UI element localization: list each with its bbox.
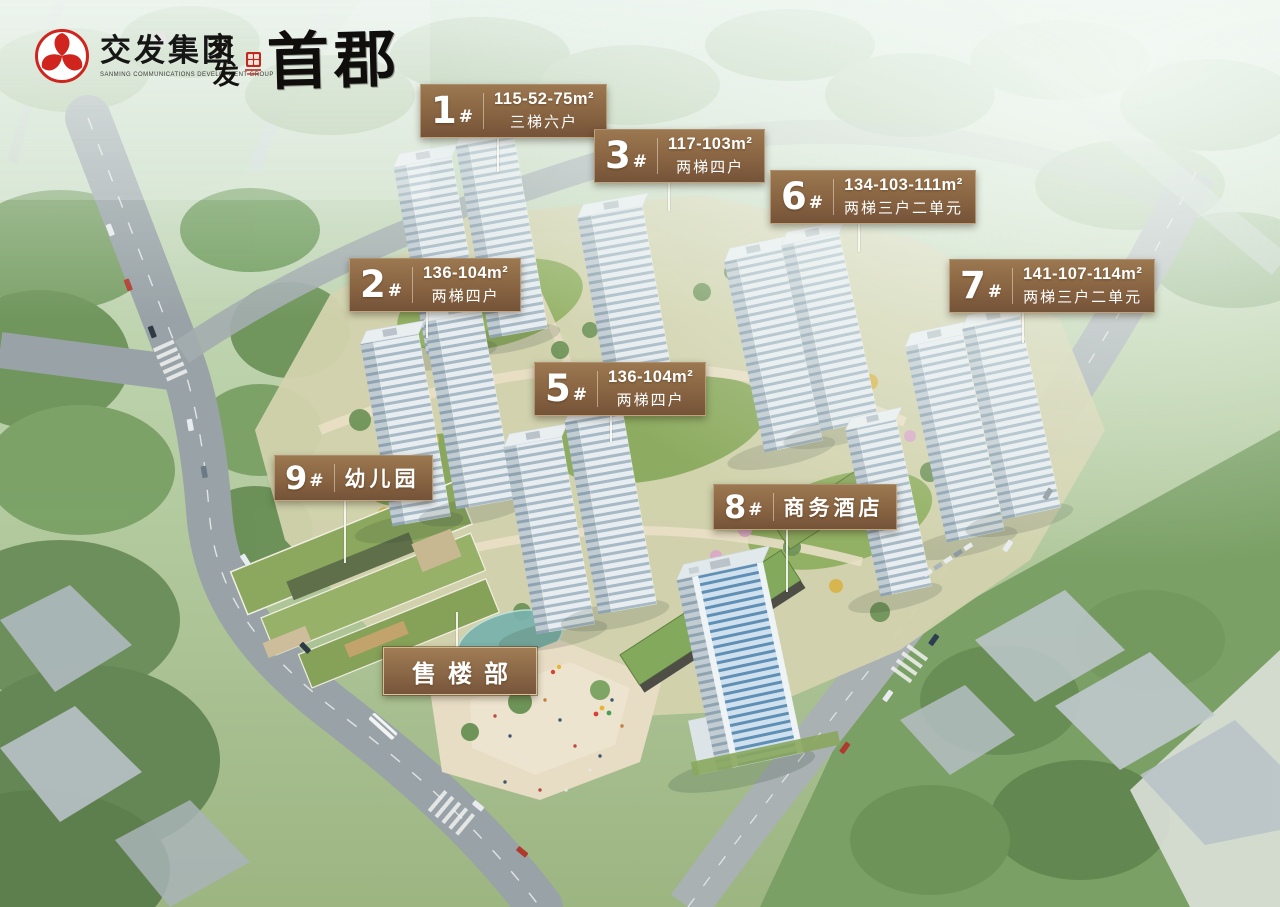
building-number-text: 8 xyxy=(724,492,746,522)
building-label-9: 9 # 幼儿园 xyxy=(274,455,433,501)
building-label-2: 2 # 136-104m² 两梯四户 xyxy=(349,258,521,312)
building-number: 9 # xyxy=(285,463,324,493)
building-layout: 两梯四户 xyxy=(676,156,744,177)
building-number: 6 # xyxy=(781,179,823,214)
building-number: 1 # xyxy=(431,93,473,128)
project-prefix-top: 交 xyxy=(207,33,239,62)
pointer-line-2 xyxy=(426,312,428,338)
building-layout: 两梯三户二单元 xyxy=(844,197,963,218)
building-number-hash: # xyxy=(748,502,762,519)
building-number-hash: # xyxy=(459,109,473,126)
pointer-line-7 xyxy=(1022,313,1024,343)
label-divider xyxy=(1012,268,1013,304)
building-number: 2 # xyxy=(360,267,402,302)
building-number-text: 5 xyxy=(545,371,571,406)
building-area: 115-52-75m² xyxy=(494,90,594,109)
building-info: 136-104m² 两梯四户 xyxy=(608,368,693,410)
building-number-text: 9 xyxy=(285,463,307,493)
pointer-line-3 xyxy=(668,183,670,211)
building-info: 117-103m² 两梯四户 xyxy=(668,135,752,177)
building-number: 7 # xyxy=(960,268,1002,303)
building-label-6: 6 # 134-103-111m² 两梯三户二单元 xyxy=(770,170,976,224)
developer-logo-icon xyxy=(34,28,90,84)
project-name: 首郡 xyxy=(266,28,402,93)
building-area: 134-103-111m² xyxy=(844,176,962,195)
building-number-hash: # xyxy=(573,387,587,404)
building-number-text: 7 xyxy=(960,268,986,303)
label-divider xyxy=(412,267,413,303)
project-prefix: 交 发 xyxy=(207,33,240,91)
building-info: 136-104m² 两梯四户 xyxy=(423,264,508,306)
building-number: 8 # xyxy=(724,492,763,522)
project-prefix-bottom: 发 xyxy=(212,62,240,91)
building-number-hash: # xyxy=(988,284,1002,301)
building-info: 115-52-75m² 三梯六户 xyxy=(494,90,594,132)
building-info: 141-107-114m² 两梯三户二单元 xyxy=(1023,265,1142,307)
label-divider xyxy=(773,493,774,521)
label-divider xyxy=(657,138,658,174)
building-number-text: 1 xyxy=(431,93,457,128)
building-label-8: 8 # 商务酒店 xyxy=(713,484,897,530)
pointer-line-9 xyxy=(344,501,346,563)
building-info: 134-103-111m² 两梯三户二单元 xyxy=(844,176,963,218)
building-label-1: 1 # 115-52-75m² 三梯六户 xyxy=(420,84,607,138)
label-divider xyxy=(833,179,834,215)
label-divider xyxy=(334,464,335,492)
building-label-3: 3 # 117-103m² 两梯四户 xyxy=(594,129,765,183)
building-number-hash: # xyxy=(633,154,647,171)
building-number-text: 3 xyxy=(605,138,631,173)
label-divider xyxy=(597,371,598,407)
building-area: 136-104m² xyxy=(608,368,693,387)
aerial-masterplan-rendering: 交发集团 SANMING COMMUNICATIONS DEVELOPMENT … xyxy=(0,0,1280,907)
building-area: 136-104m² xyxy=(423,264,508,283)
building-number: 5 # xyxy=(545,371,587,406)
pointer-line-6 xyxy=(858,224,860,252)
sales-office-name: 售楼部 xyxy=(400,654,520,689)
building-layout: 两梯四户 xyxy=(432,285,500,306)
pointer-line-8 xyxy=(786,530,788,592)
building-name: 商务酒店 xyxy=(784,492,884,522)
seal-icon xyxy=(245,52,261,75)
pointer-line-5 xyxy=(610,416,612,442)
building-name: 幼儿园 xyxy=(345,463,420,493)
building-layout: 两梯四户 xyxy=(617,389,685,410)
pointer-line-sales xyxy=(456,612,458,647)
building-label-5: 5 # 136-104m² 两梯四户 xyxy=(534,362,706,416)
building-number-hash: # xyxy=(388,283,402,300)
building-layout: 三梯六户 xyxy=(510,111,578,132)
building-label-7: 7 # 141-107-114m² 两梯三户二单元 xyxy=(949,259,1155,313)
label-divider xyxy=(483,93,484,129)
building-number-hash: # xyxy=(809,195,823,212)
pointer-line-1 xyxy=(497,138,499,172)
building-area: 117-103m² xyxy=(668,135,752,154)
building-number-text: 6 xyxy=(781,179,807,214)
building-number-text: 2 xyxy=(360,267,386,302)
sales-office-label: 售楼部 xyxy=(383,647,537,695)
building-number: 3 # xyxy=(605,138,647,173)
building-area: 141-107-114m² xyxy=(1023,265,1142,284)
building-layout: 两梯三户二单元 xyxy=(1023,286,1142,307)
project-logo: 交 发 首郡 xyxy=(208,26,401,92)
building-number-hash: # xyxy=(309,473,323,490)
